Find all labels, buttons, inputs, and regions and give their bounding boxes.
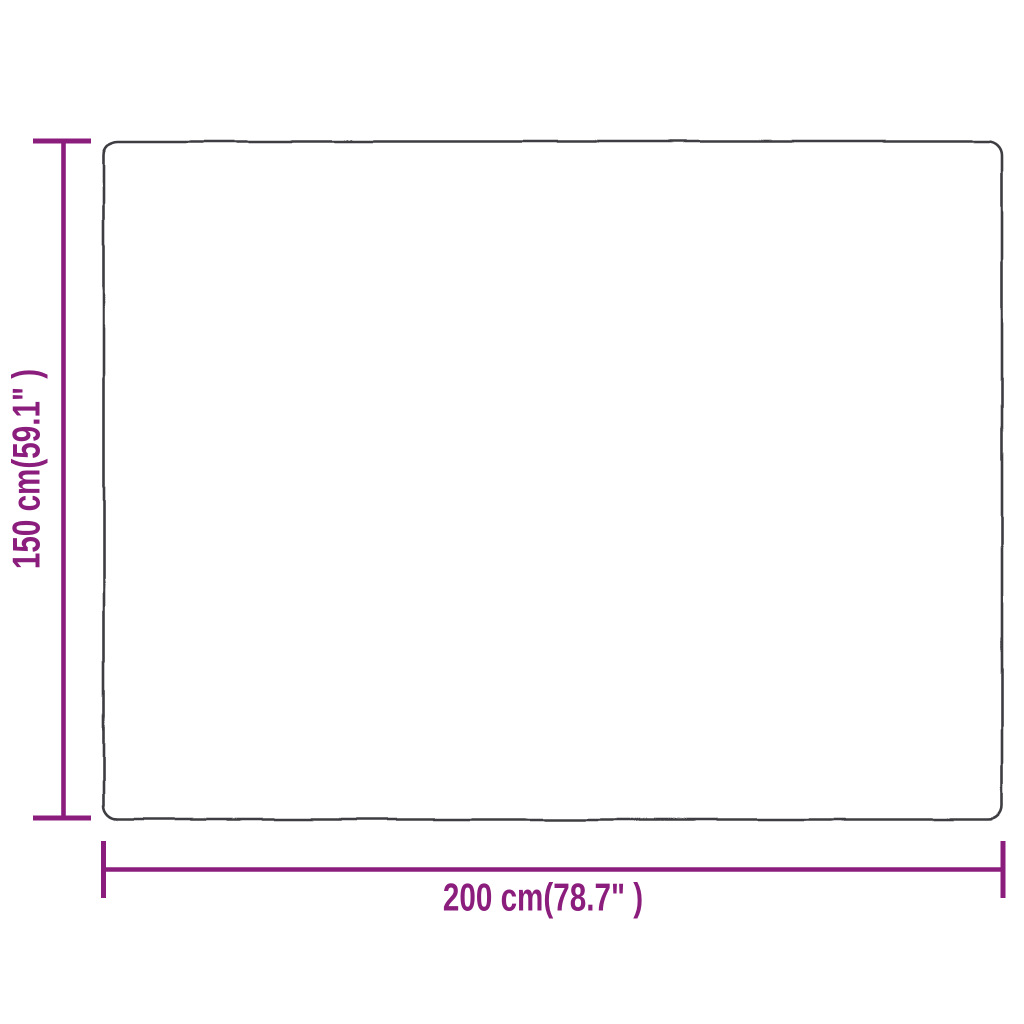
height-dimension-label: 150 cm(59.1" ) bbox=[8, 369, 47, 569]
product-outline bbox=[104, 142, 1002, 820]
dimension-diagram: 150 cm(59.1" ) 200 cm(78.7" ) bbox=[0, 0, 1024, 1024]
diagram-canvas bbox=[0, 0, 1024, 1024]
width-dimension-label: 200 cm(78.7" ) bbox=[443, 879, 643, 918]
